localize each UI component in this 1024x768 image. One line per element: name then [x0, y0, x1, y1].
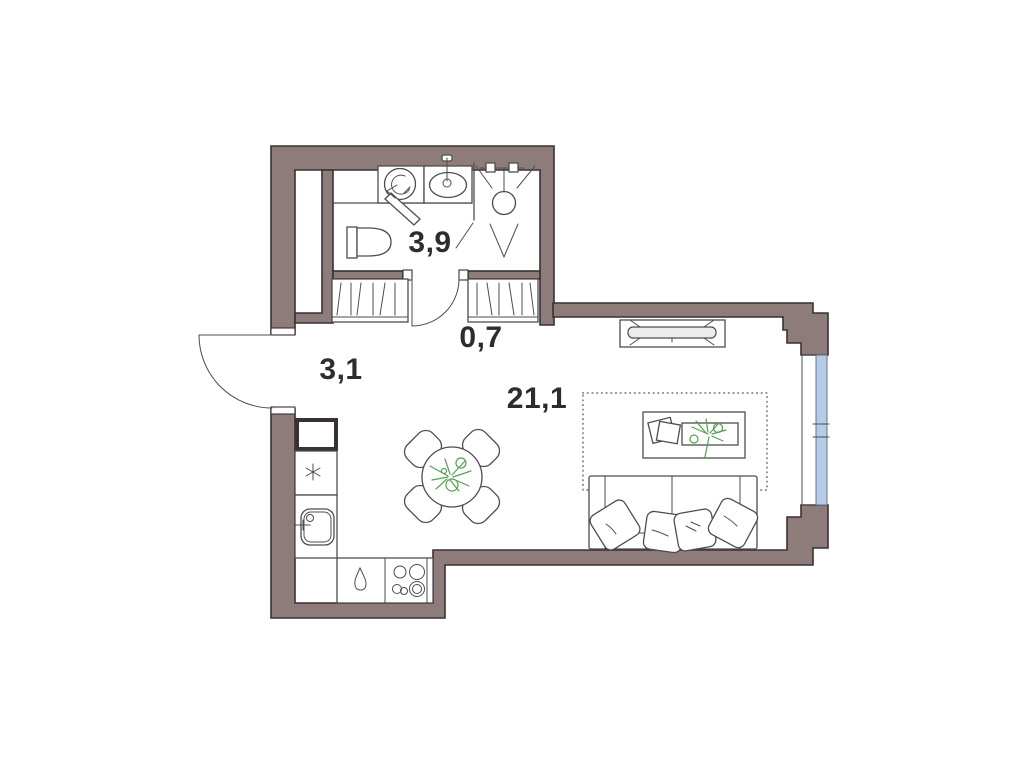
wardrobe-box [468, 279, 538, 322]
sofa-icon [587, 476, 760, 553]
area-label-bathroom: 3,9 [408, 226, 451, 259]
vent-shaft-icon [297, 420, 336, 449]
toilet-icon [347, 227, 391, 258]
wall-partition-right [468, 271, 540, 279]
entry-door [199, 335, 272, 408]
shower-mount-block [486, 163, 495, 172]
dining-table-icon [422, 447, 482, 507]
door-jamb [459, 270, 468, 280]
window-glass [816, 355, 827, 505]
refrigerator-icon [295, 451, 337, 495]
shower-drain-mark [490, 224, 518, 257]
wardrobe-box [332, 279, 408, 322]
wall-partition-left [333, 271, 403, 279]
entry-door-swing [199, 335, 272, 408]
area-label-hallway: 0,7 [459, 321, 502, 354]
door-jamb [271, 328, 295, 335]
living-room [583, 320, 767, 553]
tv-screen [628, 327, 716, 338]
floor-plan: 3,9 0,7 3,1 21,1 [0, 0, 1024, 768]
wardrobe-left [332, 279, 408, 322]
coffee-table-icon [643, 412, 745, 458]
wall-niche [295, 170, 333, 323]
tv-icon [620, 320, 725, 347]
shower-mount-block [509, 163, 518, 172]
wardrobe-right [468, 279, 538, 322]
refrigerator-box [295, 451, 337, 495]
area-label-living-kitchen: 21,1 [507, 382, 567, 415]
area-label-entry: 3,1 [319, 353, 362, 386]
window [802, 355, 829, 505]
toilet-tank [347, 227, 357, 258]
floor-plan-page: 3,9 0,7 3,1 21,1 [0, 0, 1024, 768]
bathroom-door-swing [412, 279, 459, 326]
book-icon [656, 421, 680, 443]
door-jamb [271, 407, 295, 414]
shower-diagonal [456, 223, 473, 248]
washing-machine-icon [378, 166, 424, 203]
kitchen-sink-icon [295, 495, 337, 558]
toilet-bowl [357, 228, 391, 256]
bathroom-door [412, 279, 459, 326]
dining-set [400, 425, 503, 527]
kitchen-counter [337, 558, 433, 603]
shower-head [493, 192, 516, 215]
